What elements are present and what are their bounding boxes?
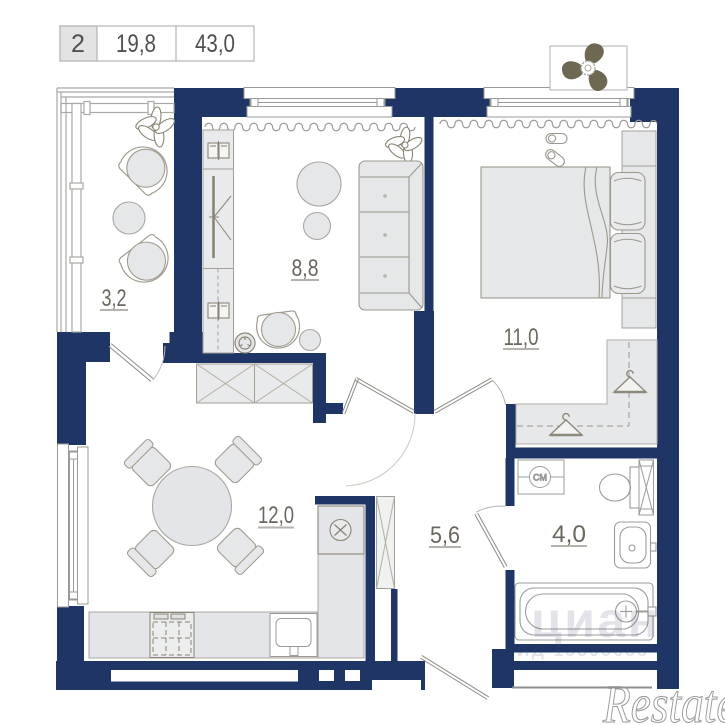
- svg-text:4,0: 4,0: [552, 521, 586, 548]
- svg-text:Restate: Restate: [602, 674, 725, 725]
- svg-text:19,8: 19,8: [116, 30, 156, 58]
- svg-text:циан: циан: [531, 592, 660, 648]
- svg-text:СМ: СМ: [533, 473, 547, 483]
- svg-text:3,2: 3,2: [102, 285, 127, 312]
- svg-text:12,0: 12,0: [258, 502, 294, 529]
- svg-text:2: 2: [71, 30, 85, 58]
- svg-text:8,8: 8,8: [292, 255, 319, 282]
- svg-text:11,0: 11,0: [504, 324, 539, 351]
- svg-text:ИД 13895688: ИД 13895688: [517, 641, 649, 660]
- svg-text:43,0: 43,0: [195, 30, 235, 58]
- svg-text:5,6: 5,6: [430, 522, 460, 549]
